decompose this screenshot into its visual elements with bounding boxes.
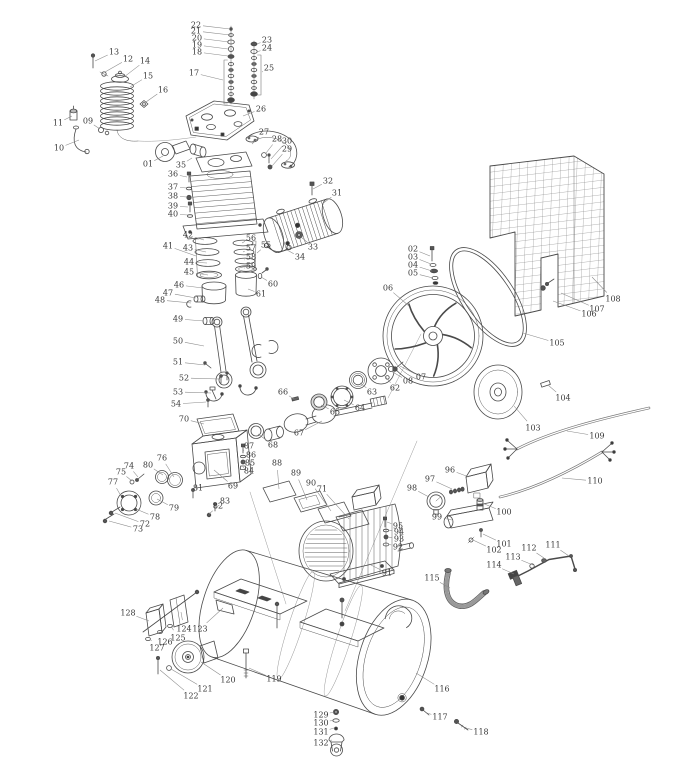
part-number-122: 122	[183, 692, 198, 701]
outlet-manifold	[444, 499, 493, 544]
leader-line-95	[387, 522, 391, 524]
part-number-15: 15	[143, 72, 153, 81]
part-number-53: 53	[173, 388, 183, 397]
leader-line-91	[369, 564, 381, 570]
part-number-08: 08	[403, 377, 413, 386]
leader-line-61	[248, 289, 255, 292]
compressor-exploded-diagram: 0102030405060708091011121314151617181920…	[0, 0, 686, 768]
part-number-28: 28	[272, 135, 282, 144]
part-number-83: 83	[220, 497, 230, 506]
circlip-48	[187, 301, 191, 307]
part-number-85: 85	[245, 459, 255, 468]
leader-line-124	[181, 612, 182, 620]
part-number-07: 07	[416, 373, 426, 382]
leader-line-33	[301, 237, 308, 243]
part-number-107: 107	[589, 305, 604, 314]
part-number-127: 127	[149, 644, 164, 653]
leader-line-82	[209, 511, 213, 514]
bolt-101	[480, 529, 483, 532]
leader-line-131	[330, 728, 334, 729]
leader-line-16	[146, 94, 157, 102]
leader-line-56	[242, 241, 245, 243]
part-number-99: 99	[432, 513, 442, 522]
part-number-124: 124	[176, 625, 191, 634]
leader-line-04	[420, 267, 432, 271]
leader-line-28	[266, 145, 273, 154]
part-number-42: 42	[183, 231, 193, 240]
part-number-118: 118	[473, 728, 488, 737]
part-number-130: 130	[313, 719, 328, 728]
leader-line-10	[66, 140, 80, 145]
leader-line-120	[201, 662, 221, 675]
part-number-06: 06	[383, 284, 393, 293]
leader-line-17	[201, 75, 223, 80]
leader-line-69	[214, 470, 228, 482]
leader-line-52	[191, 378, 219, 379]
part-number-90: 90	[306, 479, 316, 488]
belt-guard	[490, 156, 604, 316]
crankcase	[192, 430, 251, 488]
assembly-axis-lines	[250, 334, 421, 611]
leader-line-77	[117, 488, 122, 496]
leader-line-130	[330, 720, 334, 721]
caster-assembly	[329, 709, 344, 756]
part-number-31: 31	[332, 189, 342, 198]
air-filter-assembly	[70, 54, 196, 154]
leader-line-02	[420, 252, 431, 256]
leader-line-74	[133, 471, 138, 477]
part-number-60: 60	[268, 280, 278, 289]
part-number-34: 34	[295, 253, 305, 262]
air-tank	[186, 539, 445, 725]
leader-line-55	[257, 250, 261, 253]
leader-line-44	[196, 262, 207, 263]
leader-line-14	[124, 65, 139, 77]
tank-handle	[384, 602, 415, 628]
part-number-52: 52	[179, 374, 189, 383]
part-number-116: 116	[434, 685, 449, 694]
leader-line-05	[420, 275, 433, 278]
part-number-123: 123	[192, 625, 207, 634]
part-number-35: 35	[176, 161, 186, 170]
part-number-51: 51	[173, 358, 183, 367]
part-number-36: 36	[168, 170, 178, 179]
part-number-100: 100	[496, 508, 511, 517]
part-number-75: 75	[116, 468, 126, 477]
leader-line-75	[126, 476, 132, 481]
key-66	[292, 397, 299, 401]
leader-line-12	[105, 62, 122, 72]
terminal-box	[352, 492, 376, 510]
leader-line-60	[261, 277, 267, 281]
connecting-rods	[204, 307, 278, 407]
rod-cap	[240, 386, 256, 395]
part-number-29: 29	[282, 145, 292, 154]
leader-line-22	[203, 26, 230, 29]
pressure-gauge	[427, 492, 445, 514]
part-number-63: 63	[367, 388, 377, 397]
crankcase-gasket-70	[197, 414, 239, 436]
part-number-58: 58	[246, 253, 256, 262]
cylinder-head	[186, 101, 254, 140]
part-number-67: 67	[294, 429, 304, 438]
part-number-114: 114	[486, 561, 501, 570]
part-number-44: 44	[184, 258, 194, 267]
part-number-65: 65	[330, 408, 340, 417]
key-104	[541, 381, 551, 388]
part-number-87: 87	[244, 442, 254, 451]
guard-washer	[541, 286, 546, 291]
part-number-84: 84	[244, 467, 254, 476]
leader-line-110	[562, 478, 586, 480]
pressure-switch	[466, 464, 493, 498]
leader-line-98	[418, 491, 429, 497]
leader-line-39	[180, 207, 188, 208]
cylinder	[183, 171, 268, 240]
part-number-71: 71	[317, 485, 327, 494]
part-number-64: 64	[355, 404, 365, 413]
leader-line-109	[567, 431, 588, 435]
leader-line-51	[185, 363, 205, 365]
leader-line-06	[393, 293, 409, 306]
part-number-17: 17	[189, 69, 199, 78]
leader-line-09	[94, 125, 100, 129]
leader-line-57	[243, 251, 245, 252]
part-number-41: 41	[163, 242, 173, 251]
part-number-26: 26	[256, 105, 266, 114]
unloader-tube	[516, 555, 577, 578]
power-cables	[500, 408, 649, 497]
part-number-125: 125	[170, 634, 185, 643]
part-number-115: 115	[424, 574, 439, 583]
leader-line-13	[95, 55, 108, 61]
part-number-95: 95	[393, 522, 403, 531]
bearing-shell	[269, 340, 278, 353]
bearing-shell	[252, 344, 261, 357]
leader-line-25	[262, 72, 263, 73]
part-number-05: 05	[408, 269, 418, 278]
part-number-14: 14	[140, 57, 150, 66]
leader-line-45	[196, 273, 208, 275]
leader-line-50	[185, 342, 204, 346]
part-number-27: 27	[259, 128, 269, 137]
part-number-105: 105	[549, 339, 564, 348]
part-number-09: 09	[83, 117, 93, 126]
part-number-112: 112	[521, 544, 536, 553]
part-number-111: 111	[545, 541, 560, 550]
leader-line-88	[278, 470, 280, 489]
nut-29	[268, 165, 272, 169]
flywheel-bolts	[430, 247, 438, 285]
leader-line-27	[252, 137, 259, 144]
part-number-57: 57	[246, 244, 256, 253]
part-number-46: 46	[174, 281, 184, 290]
part-number-103: 103	[525, 424, 540, 433]
washer-28	[262, 153, 267, 158]
part-number-98: 98	[407, 484, 417, 493]
leader-line-35	[187, 158, 192, 161]
part-number-132: 132	[313, 739, 328, 748]
leader-line-11	[64, 116, 72, 120]
part-number-78: 78	[150, 513, 160, 522]
anchor-bolt-118	[454, 719, 468, 730]
leader-line-81	[193, 493, 194, 494]
leader-line-114	[502, 569, 514, 574]
leader-line-31	[322, 197, 331, 204]
part-number-131: 131	[313, 728, 328, 737]
part-number-16: 16	[158, 86, 168, 95]
leader-line-20	[204, 39, 229, 42]
part-number-88: 88	[272, 459, 282, 468]
leader-line-03	[420, 260, 432, 265]
leader-line-19	[204, 46, 228, 49]
part-number-120: 120	[220, 676, 235, 685]
part-number-81: 81	[193, 484, 203, 493]
part-number-76: 76	[157, 454, 167, 463]
elbow-tube-10	[74, 129, 86, 152]
part-number-86: 86	[246, 451, 256, 460]
part-number-56: 56	[246, 234, 256, 243]
leader-line-18	[204, 53, 228, 56]
leader-line-116	[416, 673, 434, 684]
part-number-30: 30	[282, 137, 292, 146]
part-number-92: 92	[393, 543, 403, 552]
part-number-108: 108	[605, 295, 620, 304]
leader-line-93	[388, 537, 392, 538]
piston-left	[187, 282, 226, 307]
leader-line-21	[203, 32, 230, 35]
leader-line-111	[560, 550, 569, 556]
leader-line-46	[186, 286, 203, 288]
part-number-49: 49	[173, 315, 183, 324]
leader-line-105	[523, 333, 548, 341]
part-number-73: 73	[133, 525, 143, 534]
part-number-110: 110	[587, 477, 602, 486]
part-number-12: 12	[123, 55, 133, 64]
leader-line-132	[330, 740, 332, 741]
part-number-37: 37	[168, 183, 178, 192]
leader-line-121	[171, 669, 197, 684]
part-number-117: 117	[432, 713, 447, 722]
part-number-77: 77	[108, 478, 118, 487]
part-number-121: 121	[197, 685, 212, 694]
part-number-113: 113	[505, 553, 520, 562]
leader-line-49	[185, 320, 204, 322]
leader-line-34	[287, 250, 294, 254]
part-number-13: 13	[109, 48, 119, 57]
part-number-25: 25	[264, 64, 274, 73]
leader-line-30	[271, 146, 282, 159]
leader-line-37	[180, 188, 187, 189]
motor-pulley	[474, 365, 550, 419]
part-number-33: 33	[308, 243, 318, 252]
part-number-11: 11	[53, 119, 63, 128]
leader-line-122	[160, 670, 184, 690]
part-number-32: 32	[323, 177, 333, 186]
part-number-43: 43	[183, 244, 193, 253]
part-number-61: 61	[256, 290, 266, 299]
part-number-69: 69	[228, 482, 238, 491]
leader-line-101	[483, 534, 496, 540]
leader-line-47	[175, 294, 196, 298]
leader-line-102	[473, 540, 486, 546]
guard-bolt	[545, 282, 548, 285]
part-number-70: 70	[179, 415, 189, 424]
part-number-80: 80	[143, 461, 153, 470]
leader-line-104	[548, 385, 556, 392]
part-number-96: 96	[445, 466, 455, 475]
part-number-102: 102	[486, 546, 501, 555]
part-number-40: 40	[168, 210, 178, 219]
part-number-01: 01	[143, 160, 153, 169]
leader-line-103	[514, 406, 527, 421]
leader-line-113	[521, 560, 533, 565]
part-number-79: 79	[169, 504, 179, 513]
leader-line-62	[384, 375, 391, 383]
part-number-109: 109	[589, 432, 604, 441]
leader-line-123	[207, 608, 223, 623]
leader-line-38	[180, 197, 187, 198]
part-number-91: 91	[382, 569, 392, 578]
leader-line-71	[327, 494, 349, 519]
switch-spring	[449, 487, 464, 494]
part-number-22: 22	[191, 21, 201, 30]
leader-line-97	[436, 482, 452, 489]
flywheel	[383, 286, 483, 386]
part-number-119: 119	[266, 675, 281, 684]
diagram-canvas: 0102030405060708091011121314151617181920…	[0, 0, 686, 768]
leader-line-119	[249, 668, 266, 675]
part-number-104: 104	[555, 394, 570, 403]
part-number-89: 89	[291, 469, 301, 478]
head-gasket	[196, 152, 252, 172]
leader-line-36	[180, 176, 187, 178]
leader-line-54	[183, 402, 206, 404]
part-number-45: 45	[184, 268, 194, 277]
valve-part-stacks	[228, 26, 258, 104]
part-number-59: 59	[246, 262, 256, 271]
tank-drain	[420, 707, 429, 715]
part-number-68: 68	[268, 441, 278, 450]
part-number-24: 24	[262, 44, 272, 53]
part-number-38: 38	[168, 192, 178, 201]
leader-line-01	[154, 156, 163, 161]
drain-valve-11	[70, 106, 77, 120]
part-number-62: 62	[390, 384, 400, 393]
leader-line-73	[109, 521, 131, 527]
aftercooler	[258, 192, 347, 255]
leader-line-23	[257, 43, 261, 44]
part-number-97: 97	[425, 475, 435, 484]
part-number-128: 128	[120, 609, 135, 618]
pin-60	[258, 273, 262, 278]
leader-line-72	[115, 513, 138, 522]
crank-eccentric	[156, 141, 207, 162]
leader-line-112	[537, 553, 545, 558]
part-number-10: 10	[54, 144, 64, 153]
part-number-50: 50	[173, 337, 183, 346]
elbow-fitting-114	[508, 570, 521, 585]
part-number-48: 48	[155, 296, 165, 305]
cylinder-bolts	[186, 172, 192, 217]
part-number-54: 54	[171, 400, 181, 409]
leader-line-40	[180, 215, 188, 216]
discharge-hose	[445, 569, 490, 607]
axle-wheel-assembly	[143, 590, 249, 678]
part-number-55: 55	[261, 241, 271, 250]
leader-line-15	[130, 80, 142, 87]
part-number-66: 66	[278, 388, 288, 397]
